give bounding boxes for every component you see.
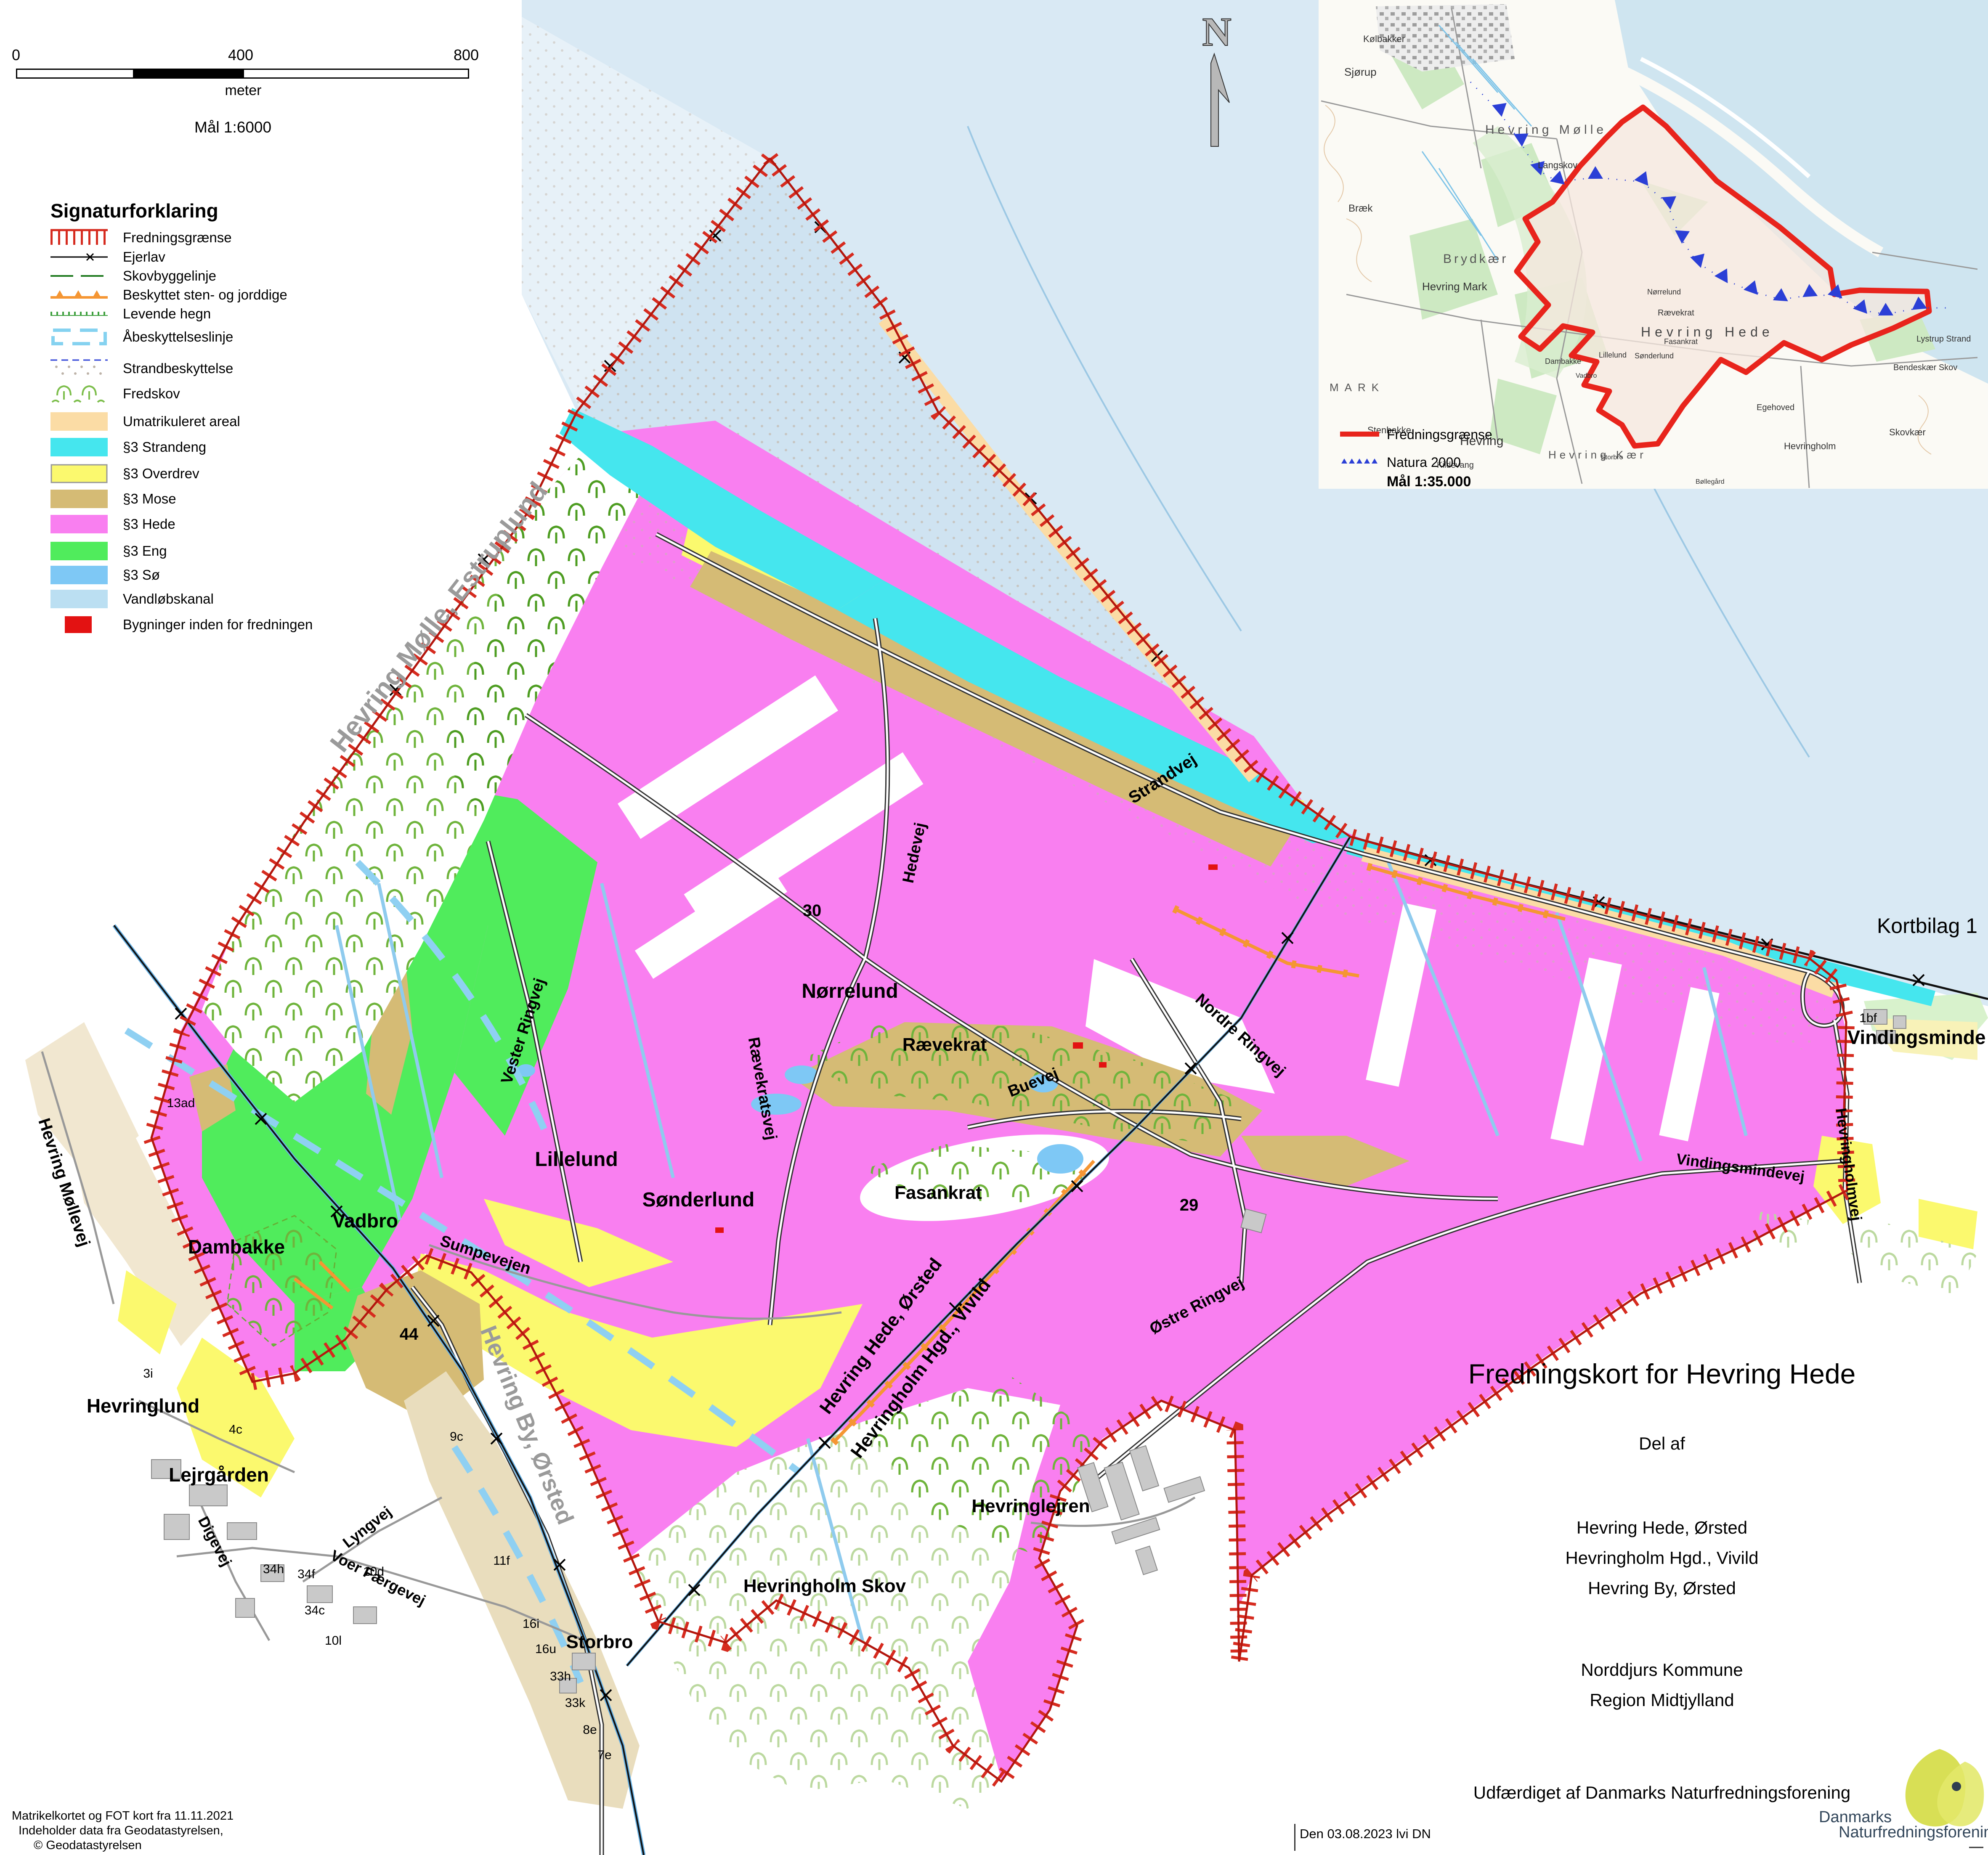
label-norrelund: Nørrelund <box>802 980 898 1002</box>
inset-label-hevring-mark: Hevring Mark <box>1422 280 1488 293</box>
legend-label: Vandløbskanal <box>123 591 214 607</box>
parcel-44: 44 <box>400 1325 419 1344</box>
scalebar-tick-0: 0 <box>12 46 20 64</box>
parcel-4c: 4c <box>229 1423 242 1436</box>
parcel-1bf: 1bf <box>1859 1011 1877 1025</box>
parcel-13ad: 13ad <box>167 1096 195 1110</box>
issuer: Udfærdiget af Danmarks Naturfredningsfor… <box>1382 1783 1942 1803</box>
legend-row-hede: §3 Hede <box>50 512 175 536</box>
parcel-30: 30 <box>803 901 822 920</box>
legend-row-fredskov: Fredskov <box>50 382 180 405</box>
map-subtitle: Del af <box>1382 1434 1942 1454</box>
north-letter: N <box>1202 9 1231 54</box>
label-dambakke: Dambakke <box>188 1236 285 1258</box>
credits-line1: Matrikelkortet og FOT kort fra 11.11.202… <box>12 1809 234 1823</box>
label-kortbilag: Kortbilag 1 <box>1877 914 1977 938</box>
municipality: Norddjurs Kommune <box>1382 1660 1942 1680</box>
parcel-11f: 11f <box>493 1554 510 1568</box>
map-title: Fredningskort for Hevring Hede <box>1382 1358 1942 1390</box>
label-hevringholm-skov: Hevringholm Skov <box>743 1576 906 1596</box>
inset-label-fasankrat: Fasankrat <box>1664 337 1698 346</box>
region: Region Midtjylland <box>1382 1690 1942 1710</box>
legend-row-strandbeskyttelse: Strandbeskyttelse <box>50 357 233 380</box>
scalebar-unit: meter <box>184 82 302 99</box>
inset-label-mark: MARK <box>1330 381 1385 394</box>
overdrev-swatch <box>50 463 108 485</box>
inset-label-vadbro: Vadbro <box>1576 372 1597 379</box>
aabeskyttelseslinje-swatch-icon <box>50 326 108 348</box>
inset-label-sonderlund: Sønderlund <box>1635 352 1674 360</box>
bygninger-swatch <box>50 614 108 636</box>
legend-label: §3 Sø <box>123 567 160 583</box>
inset-label-storbro: Storbro <box>1601 454 1623 461</box>
label-raevekrat: Rævekrat <box>902 1034 987 1055</box>
inset-label-sjorup: Sjørup <box>1344 66 1377 78</box>
inset-label-skovkaer: Skovkær <box>1889 427 1926 437</box>
dn-logo-line2: Naturfredningsforening <box>1839 1823 1988 1841</box>
inset-label-hevring-hede: Hevring Hede <box>1641 324 1774 339</box>
scalebar-scale-text: Mål 1:6000 <box>194 119 271 136</box>
label-vadbro: Vadbro <box>332 1210 398 1232</box>
parcel-34f: 34f <box>297 1567 315 1581</box>
label-storbro: Storbro <box>566 1632 633 1652</box>
parcel-29: 29 <box>1180 1196 1199 1214</box>
label-fasankrat: Fasankrat <box>894 1182 982 1203</box>
inset-label-kolbakker: Kølbakker <box>1363 34 1405 44</box>
parcel-16u: 16u <box>535 1642 556 1656</box>
inset-label-raevekrat: Rævekrat <box>1658 308 1694 318</box>
parcel-7e: 7e <box>597 1748 611 1762</box>
legend-label: Ejerlav <box>123 249 165 265</box>
legend-row-aabeskyttelseslinje: Åbeskyttelseslinje <box>50 325 233 349</box>
umatrikuleret-swatch <box>50 411 108 432</box>
legend-label: Bygninger inden for fredningen <box>123 617 313 633</box>
legend-label: §3 Eng <box>123 543 167 559</box>
inset-label-norrelund: Nørrelund <box>1647 288 1681 296</box>
inset-label-bendeskaer-skov: Bendeskær Skov <box>1893 363 1957 372</box>
legend-row-vandlobskanal: Vandløbskanal <box>50 587 214 611</box>
so-swatch <box>50 564 108 586</box>
label-hevringlejren: Hevringlejren <box>971 1496 1090 1516</box>
legend-label: Strandbeskyttelse <box>123 360 233 376</box>
map-sheet: Hevring Mølle, Estruplund Strandvej Hede… <box>0 0 1988 1855</box>
inset-label-egehoved: Egehoved <box>1757 403 1794 412</box>
area-line-3: Hevring By, Ørsted <box>1382 1578 1942 1598</box>
parcel-10d: 10d <box>363 1565 384 1579</box>
credits: Matrikelkortet og FOT kort fra 11.11.202… <box>12 1809 234 1853</box>
label-hevringlund: Hevringlund <box>87 1395 199 1417</box>
eng-swatch <box>50 540 108 562</box>
inset-label-braek: Bræk <box>1348 203 1373 214</box>
parcel-3i: 3i <box>143 1367 153 1381</box>
legend-label: §3 Overdrev <box>123 466 199 482</box>
inset-label-hevringholm: Hevringholm <box>1784 441 1836 451</box>
legend-row-eng: §3 Eng <box>50 539 167 563</box>
scalebar-tick-800: 800 <box>454 46 479 64</box>
legend-label: Umatrikuleret areal <box>123 413 240 429</box>
legend-label: §3 Strandeng <box>123 439 206 455</box>
inset-legend-natura: Natura 2000 <box>1387 455 1461 470</box>
inset-label-hevring-molle: Hevring Mølle <box>1485 123 1607 137</box>
legend-label: Åbeskyttelseslinje <box>123 329 233 345</box>
legend-row-bygninger: Bygninger inden for fredningen <box>50 613 313 636</box>
parcel-34c: 34c <box>305 1603 325 1617</box>
dn-logo-eye <box>1952 1782 1961 1791</box>
parcel-10l: 10l <box>325 1634 342 1648</box>
parcel-16i: 16i <box>523 1617 539 1631</box>
legend-row-mose: §3 Mose <box>50 487 176 511</box>
legend-row-levende-hegn: Levende hegn <box>50 302 211 326</box>
parcel-8e: 8e <box>583 1723 597 1737</box>
legend-label: Fredningsgrænse <box>123 230 232 246</box>
fredskov-swatch-icon <box>50 383 108 405</box>
legend-row-so: §3 Sø <box>50 563 160 587</box>
label-sonderlund: Sønderlund <box>642 1189 755 1211</box>
scalebar-bar-black-segment <box>133 70 244 77</box>
label-digevej: Digevej <box>195 1513 235 1569</box>
legend-title: Signaturforklaring <box>50 199 218 222</box>
area-line-2: Hevringholm Hgd., Vivild <box>1382 1548 1942 1568</box>
inset-legend-fredningsgraense: Fredningsgrænse <box>1387 427 1492 442</box>
inset-label-hevring-kaer: Hevring Kær <box>1548 448 1647 461</box>
legend-label: Levende hegn <box>123 306 211 322</box>
area-line-1: Hevring Hede, Ørsted <box>1382 1518 1942 1538</box>
legend-label: §3 Mose <box>123 491 176 507</box>
parcel-33k: 33k <box>565 1696 586 1710</box>
inset-label-langskov: Langskov <box>1538 160 1577 170</box>
parcel-34h: 34h <box>263 1562 284 1576</box>
inset-label-brydkaer: Brydkær <box>1443 252 1508 266</box>
inset-label-bollegard: Bøllegård <box>1696 478 1724 485</box>
label-vindingsminde: Vindingsminde <box>1847 1026 1986 1048</box>
legend-row-overdrev: §3 Overdrev <box>50 462 199 485</box>
inset-legend-scale: Mål 1:35.000 <box>1387 474 1471 490</box>
legend-row-umatrikuleret: Umatrikuleret areal <box>50 410 240 433</box>
strandbeskyttelse-swatch-icon <box>50 358 108 379</box>
vandlobskanal-swatch <box>50 588 108 610</box>
legend-row-strandeng: §3 Strandeng <box>50 435 206 459</box>
parcel-9c: 9c <box>450 1430 463 1444</box>
inset-map: Kølbakker Sjørup Hevring Mølle Bræk Bryd… <box>1319 0 1988 490</box>
legend-label: §3 Hede <box>123 516 175 532</box>
main-map-canvas: Hevring Mølle, Estruplund Strandvej Hede… <box>0 0 1988 1855</box>
inset-label-lillelund: Lillelund <box>1599 351 1627 359</box>
levende-hegn-swatch-icon <box>50 303 108 325</box>
inset-label-dambakke: Dambakke <box>1545 357 1581 366</box>
legend-label: Skovbyggelinje <box>123 268 216 284</box>
label-lejrgarden: Lejrgården <box>169 1464 269 1486</box>
mose-swatch <box>50 488 108 510</box>
label-lillelund: Lillelund <box>535 1148 618 1171</box>
datestamp: Den 03.08.2023 lvi DN <box>1294 1824 1431 1851</box>
inset-label-lystrup-strand: Lystrup Strand <box>1916 334 1971 344</box>
parcel-33h: 33h <box>550 1669 571 1683</box>
legend-label: Fredskov <box>123 386 180 402</box>
credits-line2: Indeholder data fra Geodatastyrelsen, <box>12 1823 234 1838</box>
scalebar-tick-400: 400 <box>228 46 253 64</box>
scalebar-bar <box>16 69 469 79</box>
credits-line3: © Geodatastyrelsen <box>12 1838 234 1853</box>
legend-label: Beskyttet sten- og jorddige <box>123 287 287 303</box>
strandeng-swatch <box>50 436 108 458</box>
hede-swatch <box>50 513 108 535</box>
